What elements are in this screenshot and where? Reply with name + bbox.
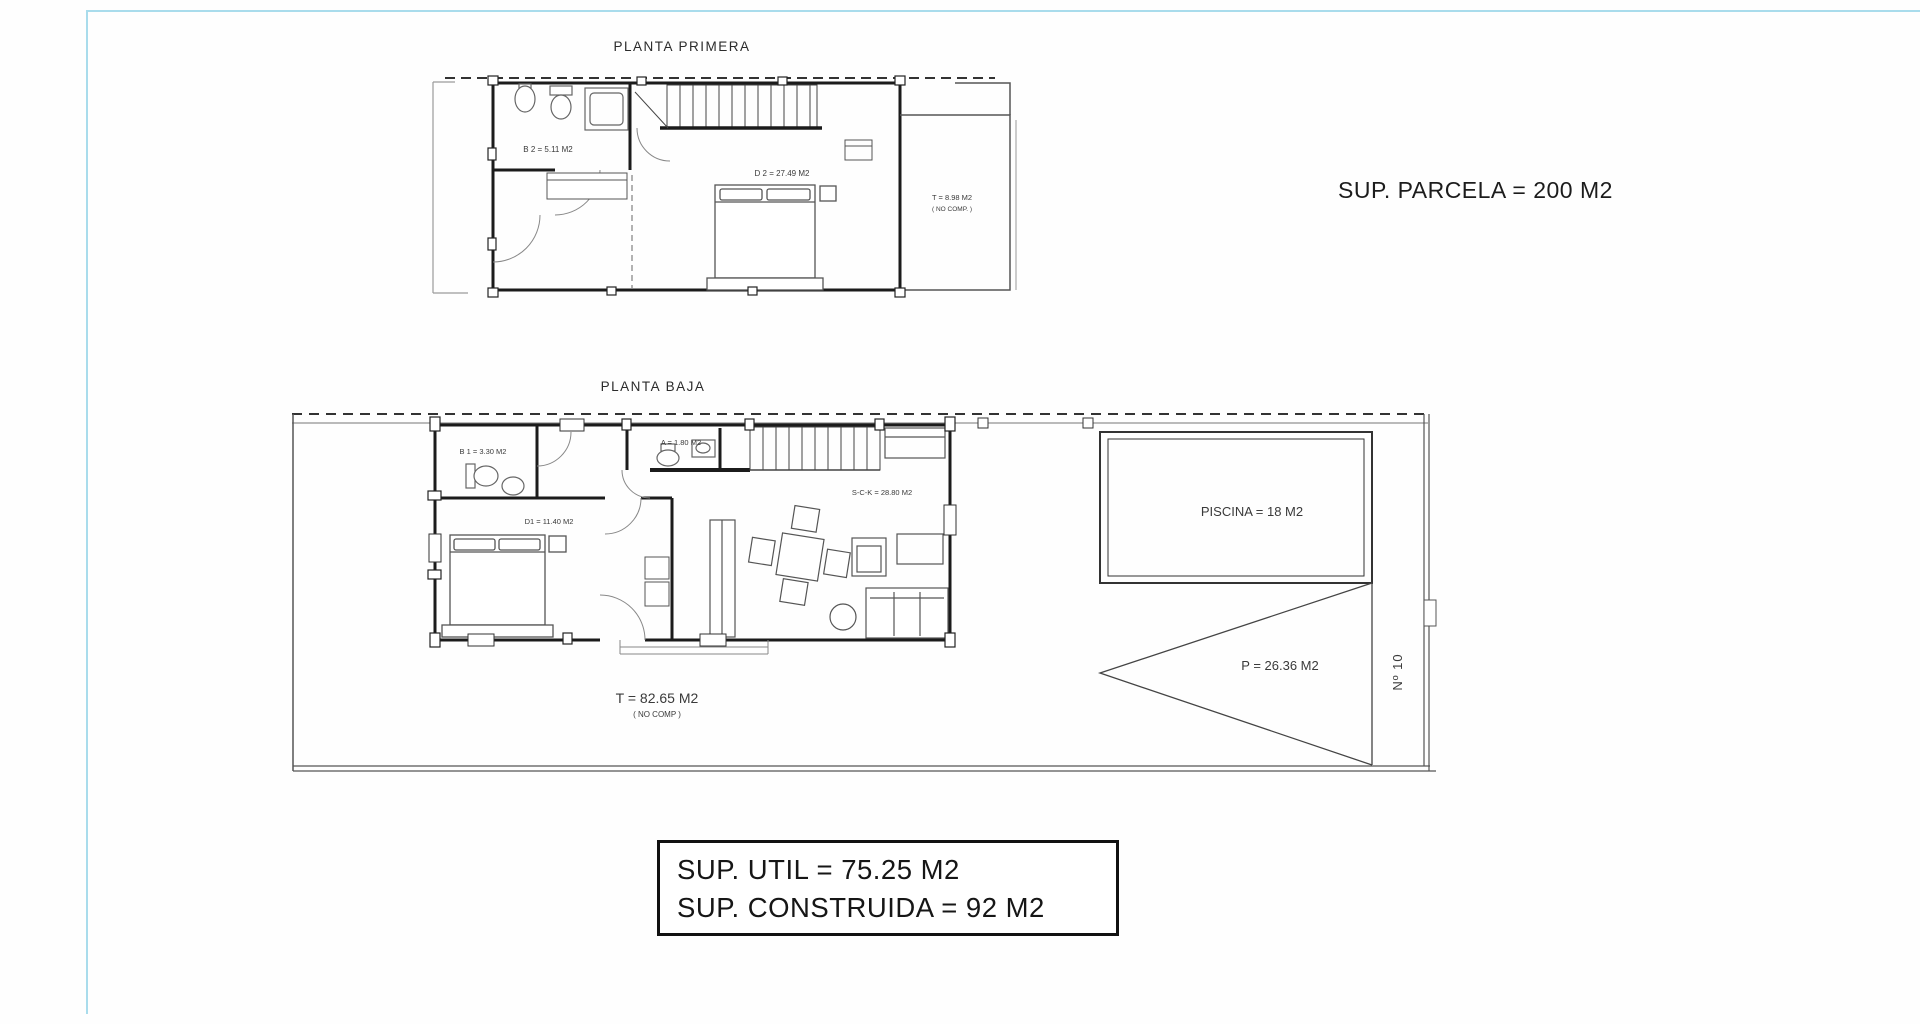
room-label-b2: B 2 = 5.11 M2 [523, 145, 573, 154]
room-label-terraza-pb-nocomp: ( NO COMP ) [633, 710, 681, 719]
planta-baja-drawing: B 1 = 3.30 M2 A = 1.80 M2 D1 = 11.40 M2 … [290, 400, 1440, 780]
sink-icon [515, 86, 535, 112]
toilet-icon [551, 95, 571, 119]
room-label-d1: D1 = 11.40 M2 [525, 517, 574, 526]
nightstand-p1 [820, 186, 836, 201]
sup-construida-label: SUP. CONSTRUIDA = 92 M2 [677, 889, 1116, 927]
planta-primera-title: PLANTA PRIMERA [557, 39, 807, 54]
bed-p1 [707, 185, 836, 290]
planta-primera-drawing: B 2 = 5.11 M2 D 2 = 27.49 M2 T = 8.98 M2… [420, 60, 1030, 305]
room-label-parking: P = 26.36 M2 [1241, 658, 1318, 673]
round-side-table [830, 604, 856, 630]
room-label-sck: S-C-K = 28.80 M2 [852, 488, 912, 497]
left-guide-line [86, 10, 88, 1014]
room-label-terraza-pb: T = 82.65 M2 [616, 690, 699, 706]
surface-summary-box: SUP. UTIL = 75.25 M2 SUP. CONSTRUIDA = 9… [657, 840, 1119, 936]
sink-icon [502, 477, 524, 495]
toilet-icon [657, 450, 679, 466]
tv-table [897, 534, 943, 564]
bathroom-fixtures-p1 [515, 84, 628, 130]
floorplan-sheet: PLANTA PRIMERA [0, 0, 1920, 1024]
dining-set [743, 500, 856, 611]
room-label-terraza-p1: T = 8.98 M2 [932, 193, 972, 202]
kitchen-cupboard [885, 428, 945, 458]
chair [824, 549, 851, 577]
terrace-walls-p1 [900, 83, 1016, 290]
stairs-p1 [635, 85, 822, 128]
toilet-tank-icon [550, 86, 572, 95]
chair [780, 579, 808, 606]
parcela-area-label: SUP. PARCELA = 200 M2 [1338, 177, 1613, 204]
sup-util-label: SUP. UTIL = 75.25 M2 [677, 851, 1116, 889]
wardrobe-d1 [645, 557, 669, 606]
bathroom-b1-fixtures [466, 464, 524, 495]
armchair [852, 538, 886, 576]
room-label-piscina: PISCINA = 18 M2 [1201, 504, 1303, 519]
toilet-icon [474, 466, 498, 486]
room-label-aseo: A = 1.80 M2 [661, 438, 701, 447]
cabinet-p1 [845, 140, 872, 160]
parking-area [1100, 583, 1372, 765]
parcel-reference-outline-p1 [433, 82, 468, 293]
bed-d1 [442, 535, 566, 637]
closet-p1 [547, 173, 627, 199]
dining-table [776, 533, 824, 581]
top-guide-line [86, 10, 1920, 12]
planta-baja-title: PLANTA BAJA [553, 379, 753, 394]
room-label-d2: D 2 = 27.49 M2 [755, 169, 810, 178]
porch-steps [620, 640, 768, 654]
room-label-terraza-p1-nocomp: ( NO COMP. ) [932, 206, 972, 213]
street-number-label: Nº 10 [1390, 653, 1405, 690]
room-label-b1: B 1 = 3.30 M2 [460, 447, 507, 456]
chair [749, 537, 776, 565]
sofa [866, 588, 948, 638]
chair [791, 506, 819, 533]
nightstand-d1 [549, 536, 566, 552]
stairs-pb [750, 427, 880, 470]
